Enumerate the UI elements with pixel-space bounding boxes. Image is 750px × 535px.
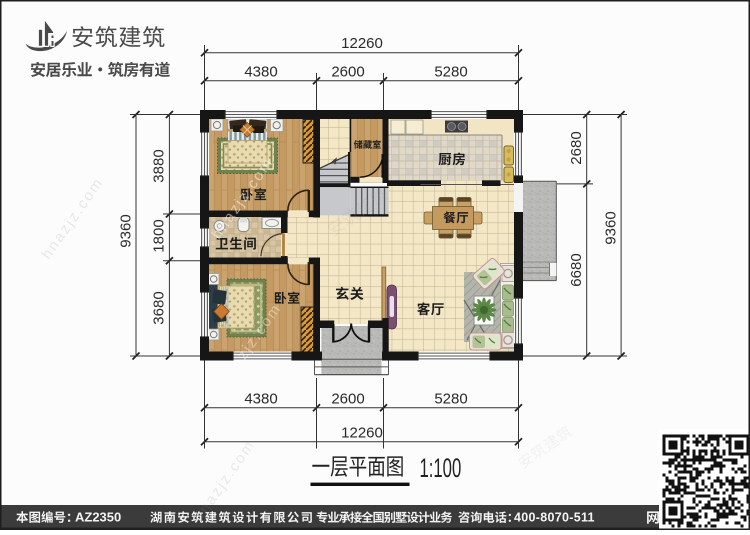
- svg-text:5280: 5280: [434, 64, 467, 81]
- svg-text:12260: 12260: [341, 35, 383, 52]
- svg-text:4380: 4380: [244, 391, 277, 408]
- svg-text:1:100: 1:100: [420, 453, 462, 483]
- svg-text:9360: 9360: [118, 214, 135, 247]
- svg-text:2600: 2600: [331, 64, 364, 81]
- svg-text:12260: 12260: [341, 425, 383, 442]
- svg-text:1800: 1800: [151, 219, 168, 252]
- svg-text:400-8070-511: 400-8070-511: [514, 511, 595, 525]
- svg-text:AZ2350: AZ2350: [75, 510, 121, 525]
- svg-text:3880: 3880: [151, 149, 168, 182]
- svg-text:2600: 2600: [331, 391, 364, 408]
- svg-text:4380: 4380: [244, 64, 277, 81]
- svg-text:9360: 9360: [603, 211, 620, 244]
- svg-text:5280: 5280: [434, 391, 467, 408]
- svg-text:2680: 2680: [568, 131, 585, 164]
- svg-text:6680: 6680: [568, 253, 585, 286]
- svg-text:3680: 3680: [151, 291, 168, 324]
